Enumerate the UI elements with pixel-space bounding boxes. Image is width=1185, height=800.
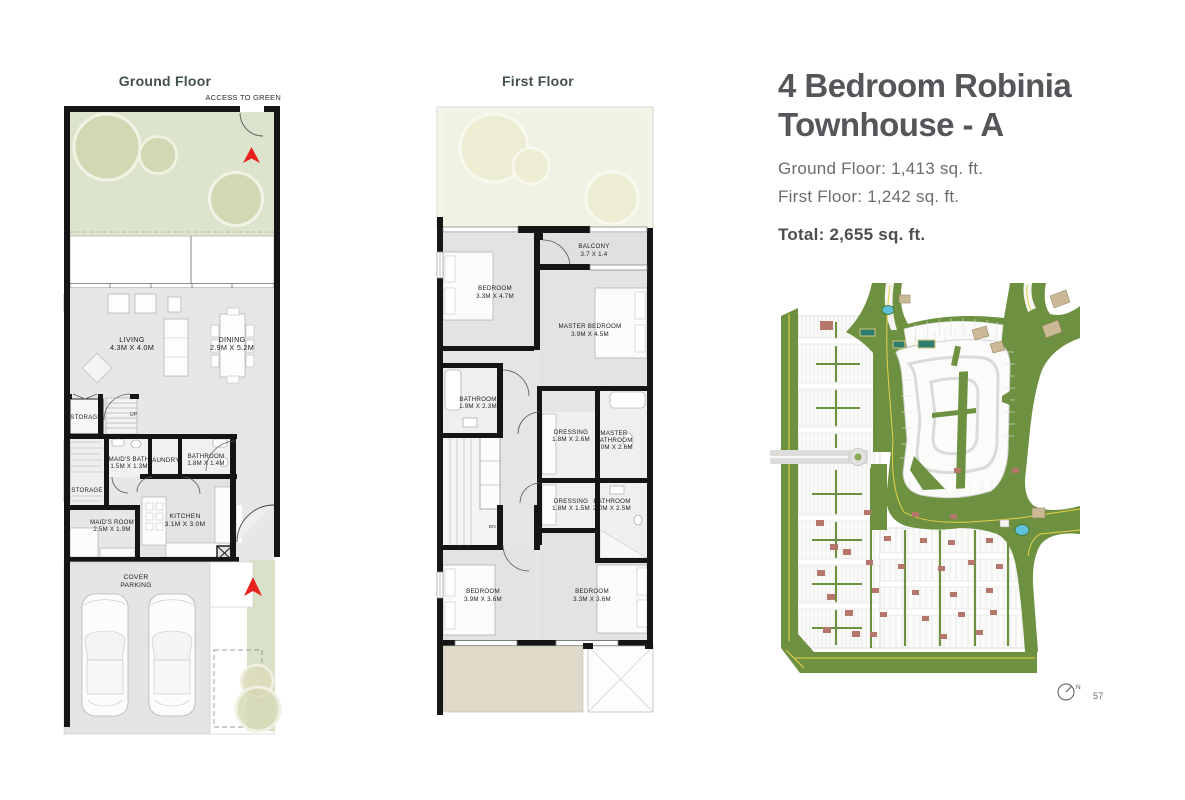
svg-text:57: 57	[1093, 691, 1104, 701]
svg-text:LAUNDRY: LAUNDRY	[148, 457, 179, 464]
svg-text:BATHROOM: BATHROOM	[188, 453, 225, 460]
svg-text:Total: 2,655 sq. ft.: Total: 2,655 sq. ft.	[778, 225, 925, 244]
svg-text:3.7 X 1.4: 3.7 X 1.4	[580, 251, 607, 258]
svg-text:Townhouse - A: Townhouse - A	[778, 106, 1004, 143]
svg-text:1.9M X 2.3M: 1.9M X 2.3M	[459, 403, 497, 410]
svg-text:BEDROOM: BEDROOM	[575, 588, 609, 595]
svg-text:1.5M X 1.3M: 1.5M X 1.3M	[110, 463, 147, 470]
svg-text:3.3M X 4.7M: 3.3M X 4.7M	[476, 293, 514, 300]
svg-text:MAID'S BATH: MAID'S BATH	[109, 456, 150, 463]
svg-text:MAID'S ROOM: MAID'S ROOM	[90, 519, 134, 526]
svg-text:BALCONY: BALCONY	[578, 243, 609, 250]
svg-text:2.5M X 1.9M: 2.5M X 1.9M	[93, 526, 130, 533]
svg-text:STORAGE: STORAGE	[70, 414, 101, 421]
svg-text:Ground Floor: Ground Floor	[119, 73, 212, 89]
svg-text:2.0M X 2.6M: 2.0M X 2.6M	[595, 444, 633, 451]
svg-text:3.1M X 3.0M: 3.1M X 3.0M	[165, 521, 206, 528]
svg-text:MASTER: MASTER	[600, 430, 628, 437]
svg-text:BEDROOM: BEDROOM	[478, 285, 512, 292]
svg-text:N: N	[1076, 684, 1081, 691]
svg-text:MASTER BEDROOM: MASTER BEDROOM	[559, 323, 622, 330]
svg-text:DRESSING: DRESSING	[554, 498, 588, 505]
svg-text:STORAGE: STORAGE	[71, 487, 102, 494]
svg-text:BEDROOM: BEDROOM	[466, 588, 500, 595]
svg-text:COVER: COVER	[123, 574, 148, 581]
svg-text:BATHROOM: BATHROOM	[459, 396, 496, 403]
svg-text:3.3M X 3.6M: 3.3M X 3.6M	[573, 596, 611, 603]
svg-text:DN: DN	[489, 524, 497, 530]
svg-text:KITCHEN: KITCHEN	[169, 513, 200, 520]
svg-text:2.9M X 5.2M: 2.9M X 5.2M	[210, 343, 254, 352]
svg-text:Ground Floor: 1,413 sq. ft.: Ground Floor: 1,413 sq. ft.	[778, 159, 983, 178]
svg-text:UP: UP	[130, 412, 138, 418]
svg-text:1.8M X 1.4M: 1.8M X 1.4M	[187, 460, 224, 467]
svg-text:4 Bedroom Robinia: 4 Bedroom Robinia	[778, 67, 1072, 104]
svg-text:First Floor: First Floor	[502, 73, 574, 89]
svg-text:4.3M X 4.0M: 4.3M X 4.0M	[110, 343, 154, 352]
svg-text:BATHROOM: BATHROOM	[595, 437, 632, 444]
svg-text:DRESSING: DRESSING	[554, 429, 588, 436]
svg-text:PARKING: PARKING	[120, 582, 151, 589]
svg-text:1.8M X 2.6M: 1.8M X 2.6M	[552, 436, 590, 443]
svg-text:ACCESS TO GREEN: ACCESS TO GREEN	[205, 93, 281, 102]
svg-text:3.9M X 4.5M: 3.9M X 4.5M	[571, 331, 609, 338]
svg-text:1.8M X 1.5M: 1.8M X 1.5M	[552, 505, 590, 512]
svg-text:3.9M X 3.6M: 3.9M X 3.6M	[464, 596, 502, 603]
svg-text:First Floor: 1,242 sq. ft.: First Floor: 1,242 sq. ft.	[778, 187, 959, 206]
